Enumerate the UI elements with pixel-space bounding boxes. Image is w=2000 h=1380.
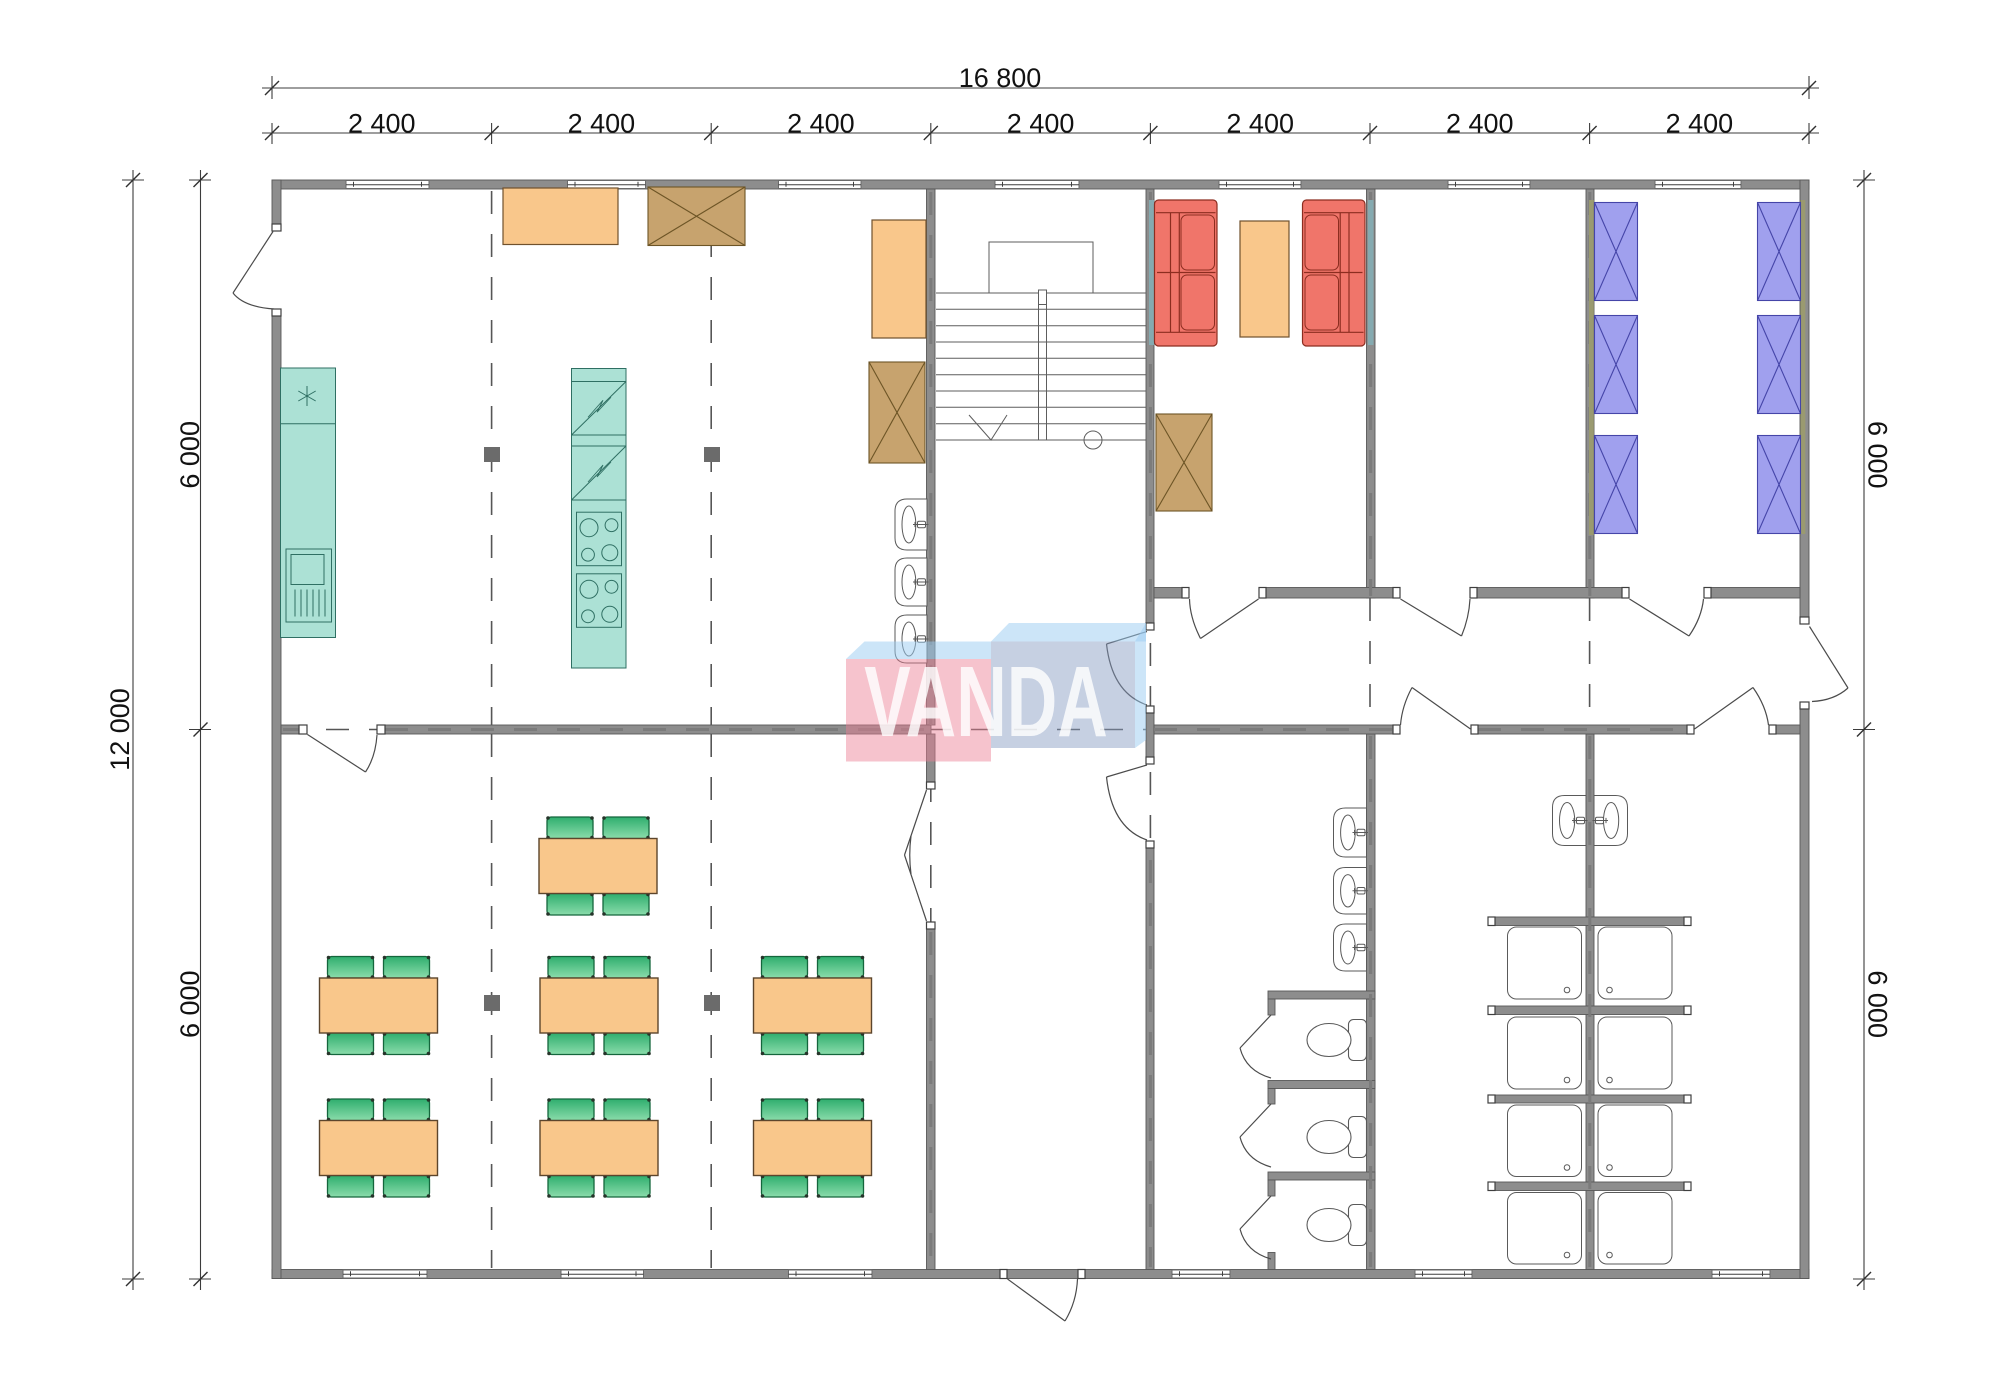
svg-text:6 000: 6 000	[175, 421, 205, 489]
svg-text:2 400: 2 400	[568, 109, 636, 139]
svg-text:2 400: 2 400	[1007, 109, 1075, 139]
svg-text:2 400: 2 400	[1226, 109, 1294, 139]
svg-text:2 400: 2 400	[787, 109, 855, 139]
svg-text:6 000: 6 000	[1863, 970, 1893, 1038]
svg-text:6 000: 6 000	[1863, 421, 1893, 489]
svg-text:6 000: 6 000	[175, 970, 205, 1038]
svg-text:2 400: 2 400	[1666, 109, 1734, 139]
svg-text:VANDA: VANDA	[864, 647, 1108, 758]
svg-text:2 400: 2 400	[1446, 109, 1514, 139]
svg-text:2 400: 2 400	[348, 109, 416, 139]
svg-text:12 000: 12 000	[105, 688, 135, 771]
svg-text:16 800: 16 800	[959, 63, 1042, 93]
